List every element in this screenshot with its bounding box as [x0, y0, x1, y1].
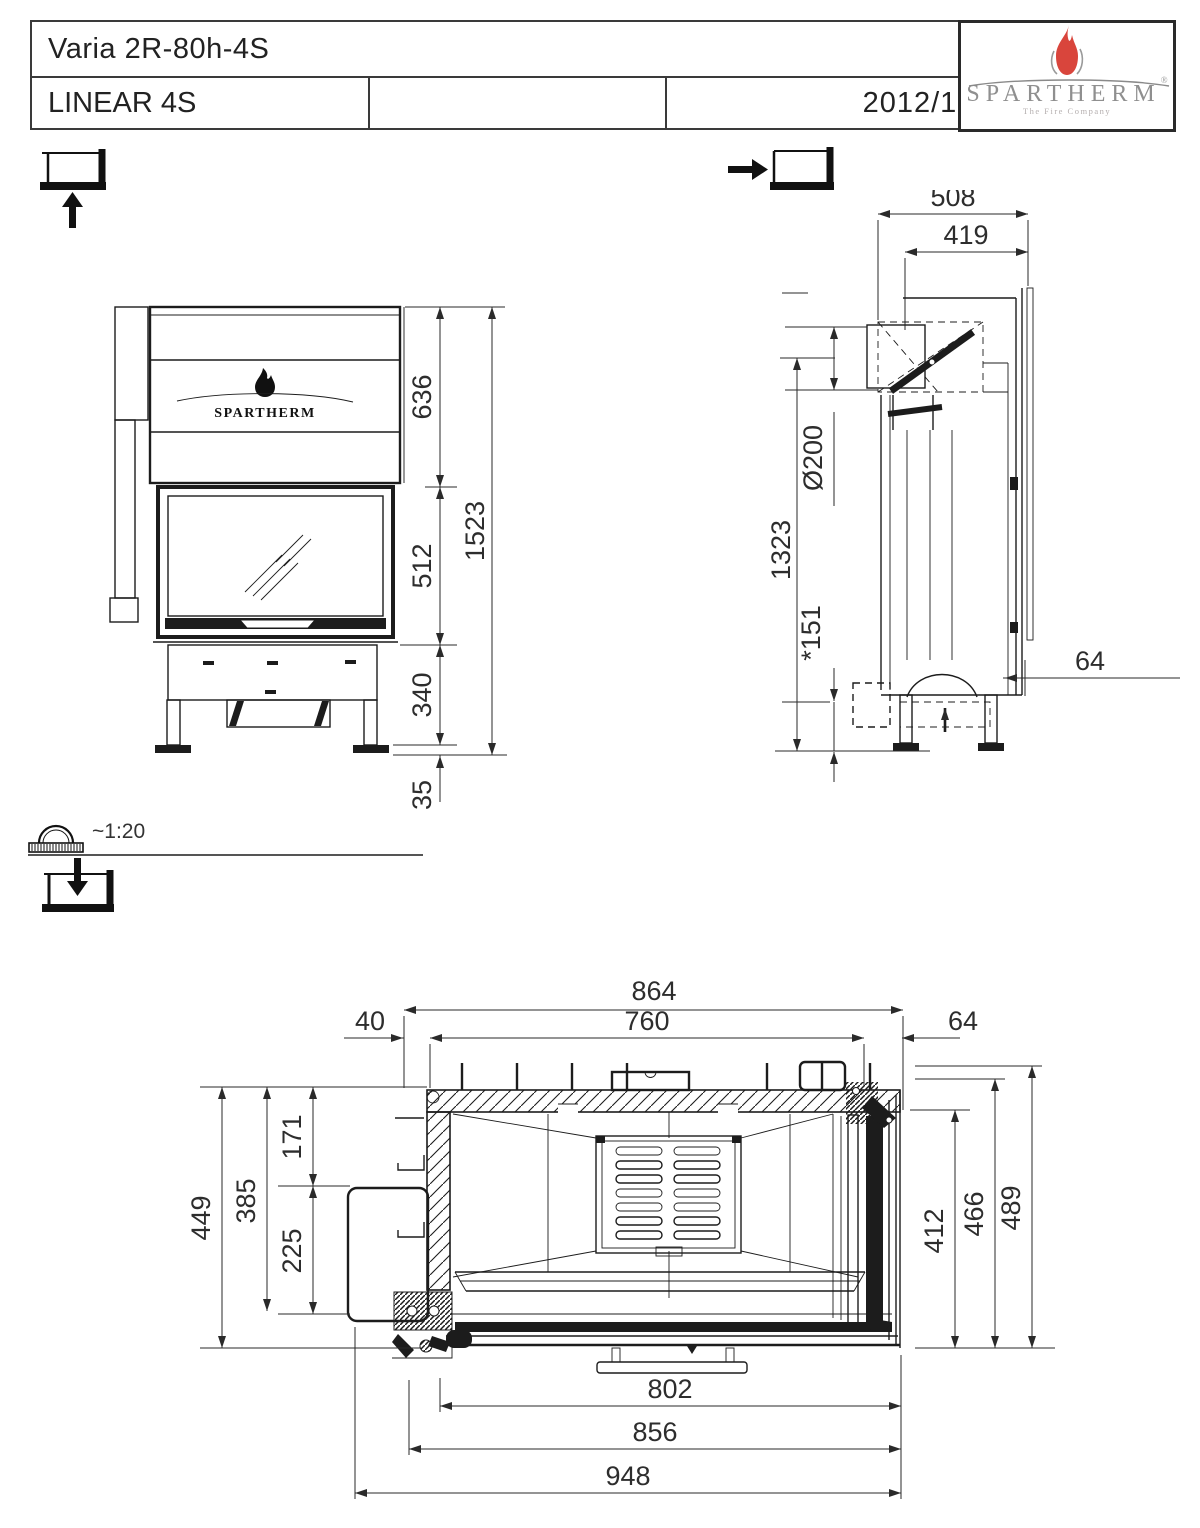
top-bottom-dimensions: 802 856 948	[355, 1327, 901, 1499]
dim-side-flue-diameter: Ø200	[798, 425, 828, 491]
top-front-glass	[440, 1314, 900, 1373]
dim-top-right-offset: 64	[948, 1006, 978, 1036]
front-base	[155, 645, 389, 753]
dim-top-glass-width: 802	[647, 1374, 692, 1404]
dim-front-feet-height: 35	[407, 780, 437, 810]
front-glass-door	[153, 487, 398, 642]
dim-top-interior-depth: 412	[919, 1208, 949, 1253]
glass-reflection	[245, 535, 311, 600]
dim-front-upper-height: 636	[407, 374, 437, 419]
dim-side-rear-clearance: 64	[1075, 646, 1105, 676]
front-logo-text: SPARTHERM	[214, 406, 315, 421]
logo-swoosh	[967, 75, 1171, 89]
series-name: LINEAR 4S	[32, 78, 370, 128]
dim-top-upper-depth: 171	[277, 1114, 307, 1159]
side-flue-damper	[867, 322, 983, 430]
datasheet-page: Varia 2R-80h-4S LINEAR 4S 2012/12 SPARTH…	[0, 0, 1200, 1528]
front-logo: SPARTHERM	[177, 368, 353, 421]
dim-side-total-depth: 508	[930, 190, 975, 212]
top-interior	[453, 1112, 865, 1298]
dim-top-frame-width: 856	[632, 1417, 677, 1447]
door-handle	[597, 1362, 747, 1373]
empty-cell	[370, 78, 667, 128]
grate-slots	[616, 1147, 720, 1239]
top-right-side-glass	[833, 1082, 900, 1348]
flame-icon	[1041, 23, 1093, 79]
dim-side-flue-offset: 419	[943, 220, 988, 250]
side-height-dimensions: Ø200 1323 *151 64	[766, 293, 1180, 782]
dim-front-base-height: 340	[407, 672, 437, 717]
dim-top-left-depth: 385	[231, 1178, 261, 1223]
dim-top-back-depth: 466	[959, 1191, 989, 1236]
section-divider	[28, 854, 423, 856]
dim-top-left-offset: 40	[355, 1006, 385, 1036]
dim-top-left-depth-total: 449	[186, 1195, 216, 1240]
side-view-drawing: 508 419	[760, 190, 1200, 805]
brand-tagline: The Fire Company	[1023, 106, 1111, 116]
dim-front-total-height: 1523	[460, 501, 490, 561]
title-block: Varia 2R-80h-4S LINEAR 4S 2012/12 SPARTH…	[30, 20, 1172, 130]
front-view-drawing: SPARTHERM	[95, 290, 515, 830]
top-body	[348, 1062, 900, 1321]
dim-top-inner-width: 760	[624, 1006, 669, 1036]
side-body	[881, 288, 1033, 695]
dim-top-body-width: 864	[631, 976, 676, 1006]
dim-side-air-inlet-height: *151	[796, 605, 826, 661]
front-dimensions: 636 512 340 35 1523	[393, 307, 507, 810]
top-view-drawing: 864 40 760 64	[170, 950, 1200, 1510]
side-bottom	[853, 675, 1022, 752]
front-view-icon	[40, 145, 120, 230]
dim-top-door-depth: 225	[277, 1228, 307, 1273]
dim-side-flue-axis-height: 1323	[766, 520, 796, 580]
protractor-icon	[28, 814, 88, 856]
side-depth-dimensions: 508 419	[878, 190, 1028, 330]
dim-top-total-depth: 489	[996, 1185, 1026, 1230]
top-view-icon	[40, 858, 122, 920]
dim-front-glass-height: 512	[407, 543, 437, 588]
dim-top-total-width: 948	[605, 1461, 650, 1491]
brand-logo: SPARTHERM® The Fire Company	[958, 20, 1176, 132]
front-body	[110, 307, 404, 622]
